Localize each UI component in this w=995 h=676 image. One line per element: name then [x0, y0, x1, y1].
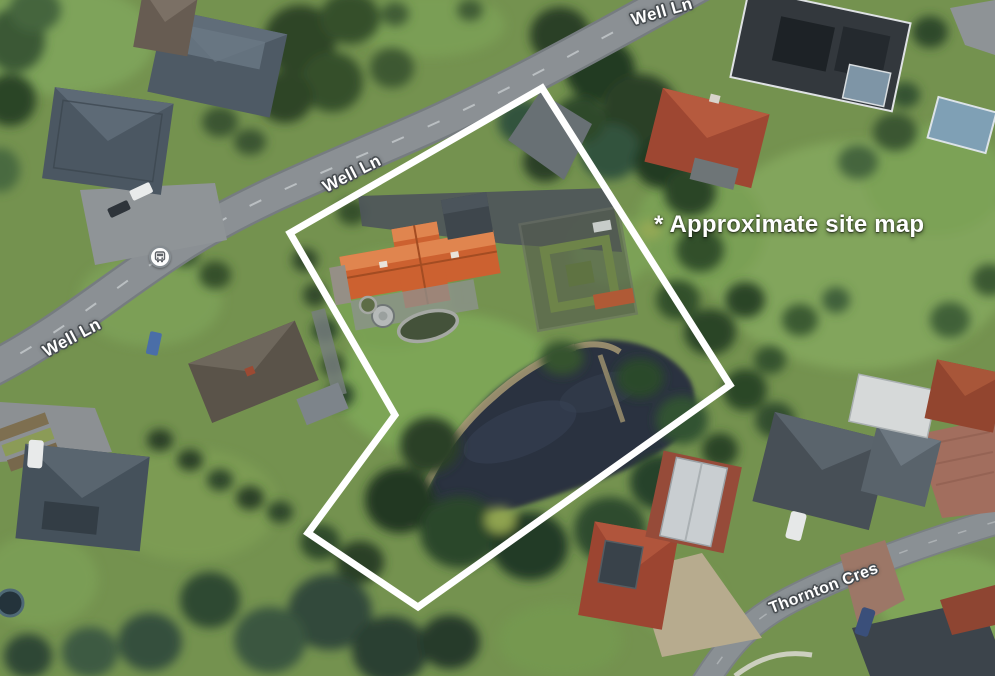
satellite-map[interactable]: Well Ln Well Ln Well Ln Thornton Cres * … [0, 0, 995, 676]
walled-garden [520, 207, 637, 331]
house-top-corner [133, 0, 197, 56]
house-northwest-large [42, 87, 174, 195]
trampoline [0, 590, 23, 616]
bus-glyph [154, 251, 166, 263]
site-map-annotation: * Approximate site map [654, 211, 924, 239]
bus-stop-icon[interactable] [149, 246, 171, 268]
